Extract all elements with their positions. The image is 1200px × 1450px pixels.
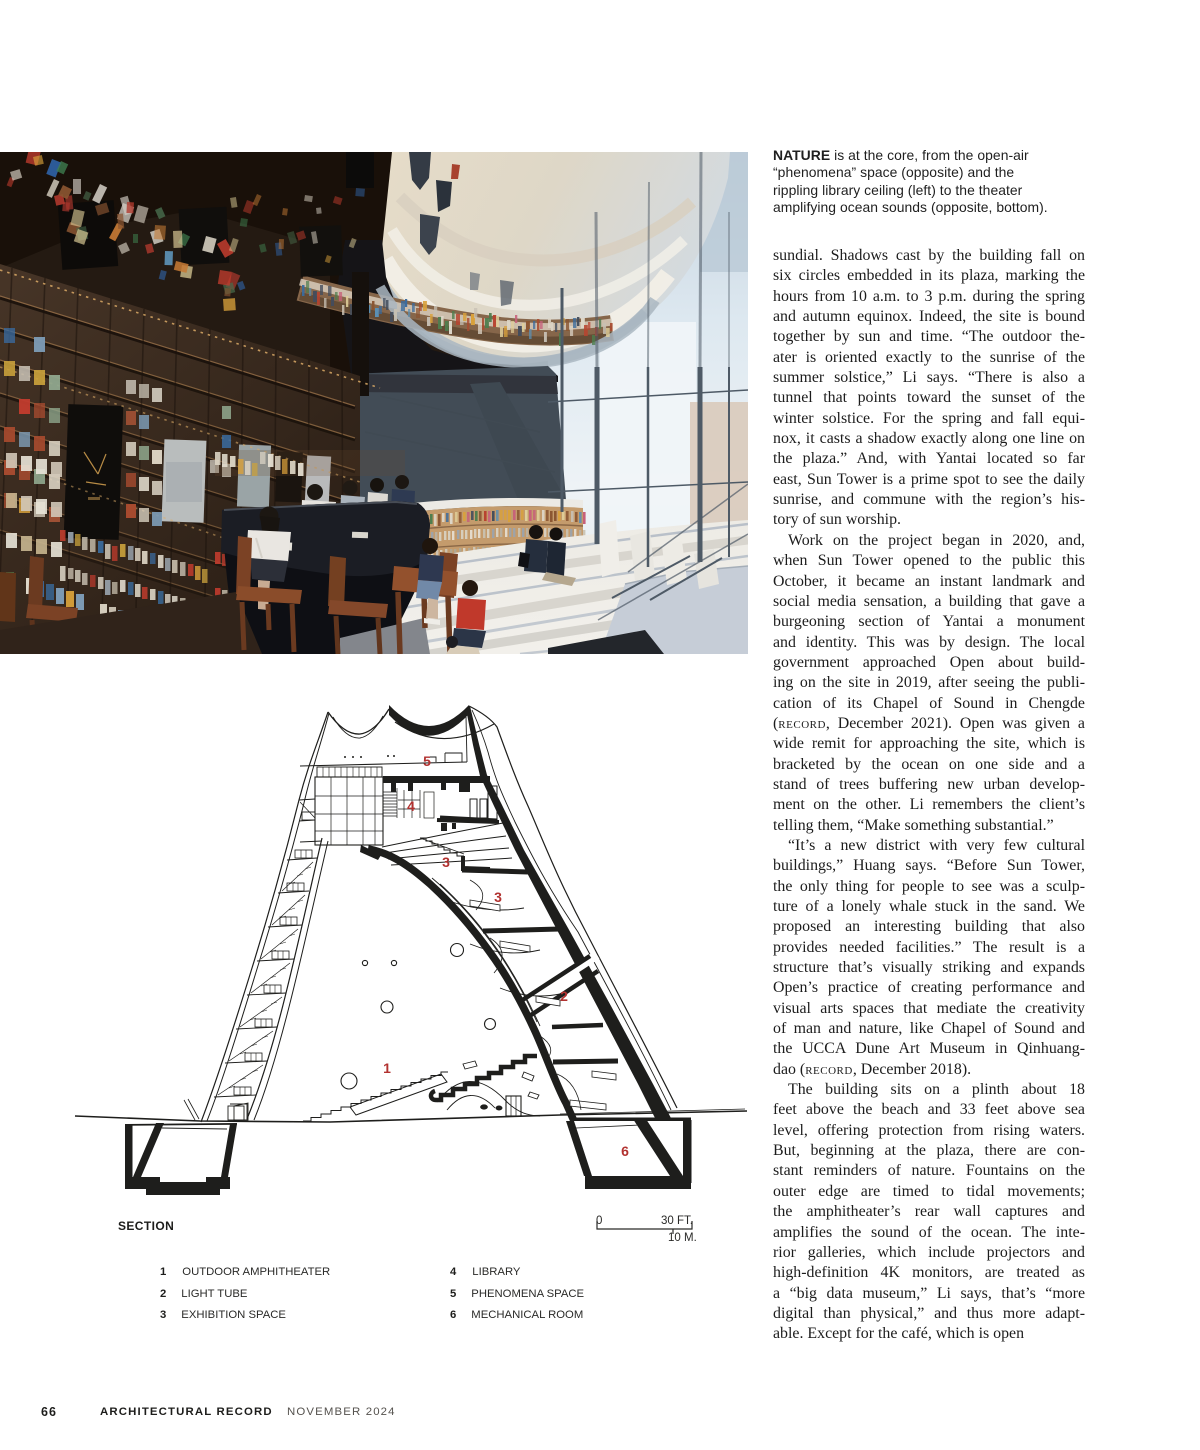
svg-text:6: 6	[621, 1143, 629, 1159]
svg-text:2: 2	[560, 988, 568, 1004]
svg-text:10 M.: 10 M.	[668, 1232, 697, 1243]
svg-text:5: 5	[423, 753, 431, 769]
svg-text:4: 4	[407, 798, 415, 814]
svg-text:30 FT.: 30 FT.	[661, 1215, 693, 1227]
svg-text:3: 3	[442, 854, 450, 870]
svg-text:1: 1	[383, 1060, 391, 1076]
svg-text:3: 3	[494, 889, 502, 905]
